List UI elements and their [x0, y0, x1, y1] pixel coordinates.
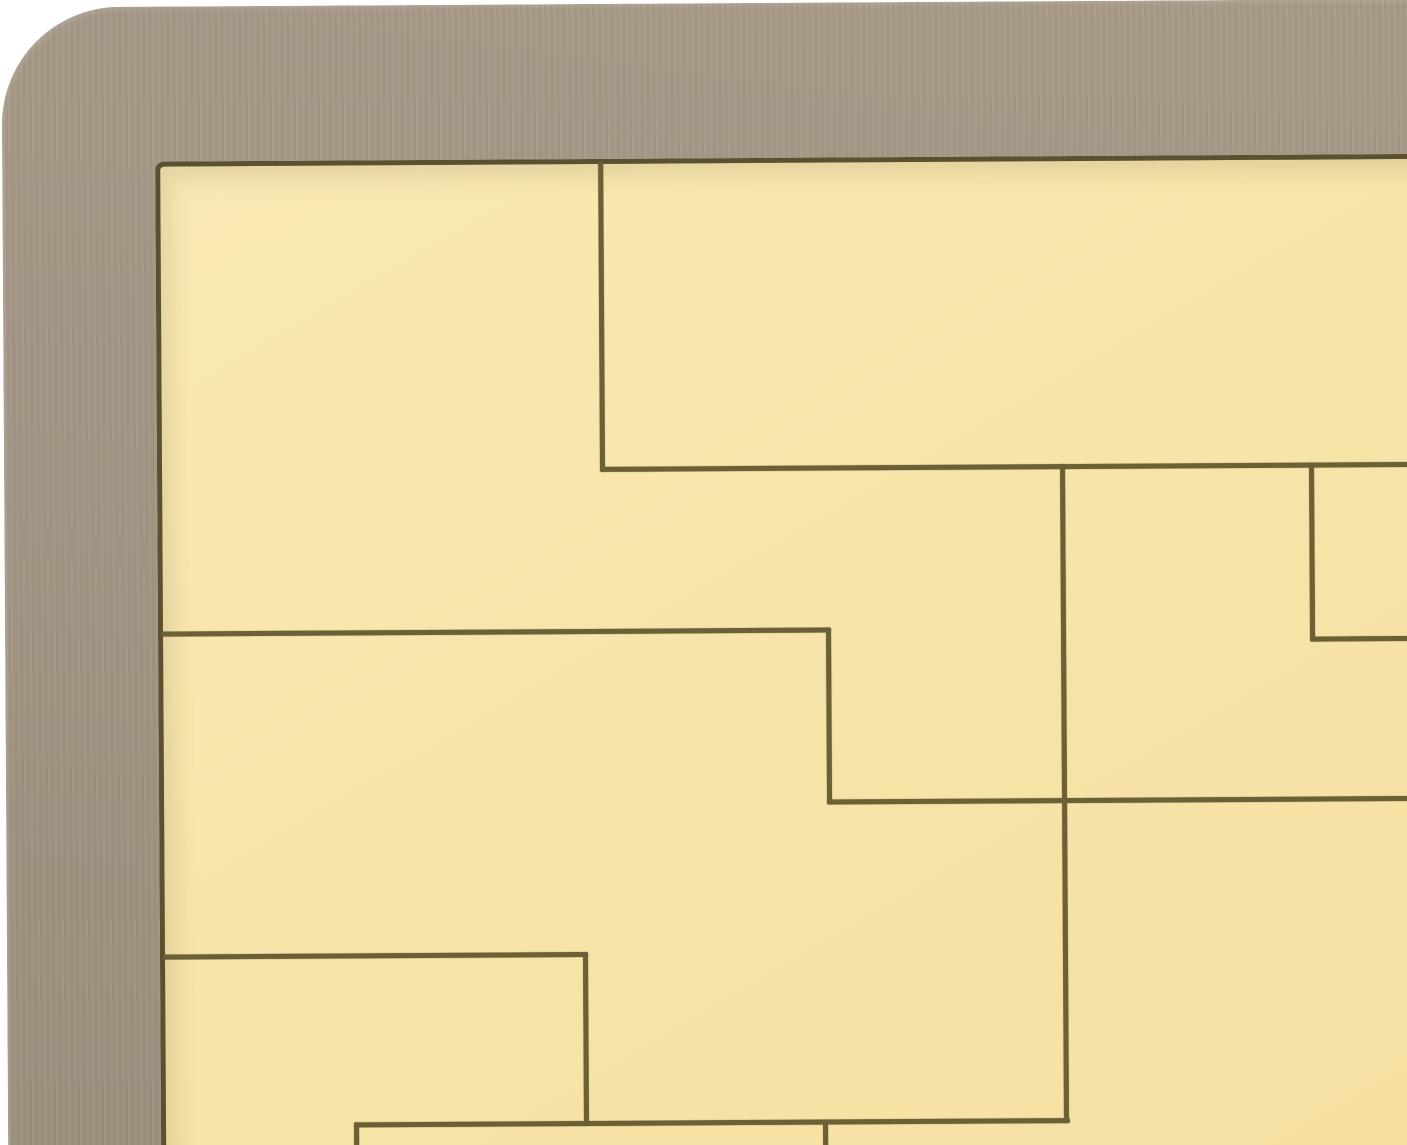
seam-vertical-mid-step	[826, 628, 832, 805]
puzzle-board	[155, 153, 1407, 1145]
seam-vertical-bottom-mid	[823, 1120, 828, 1145]
seam-vertical-lower-step	[583, 952, 589, 1126]
photo-tilt-group	[0, 0, 1407, 1145]
seam-horizontal-right-small	[1310, 636, 1407, 642]
seam-vertical-right-small	[1309, 463, 1315, 642]
product-photo-scene	[0, 0, 1407, 1145]
seam-vertical-bottom-left	[354, 1122, 359, 1145]
